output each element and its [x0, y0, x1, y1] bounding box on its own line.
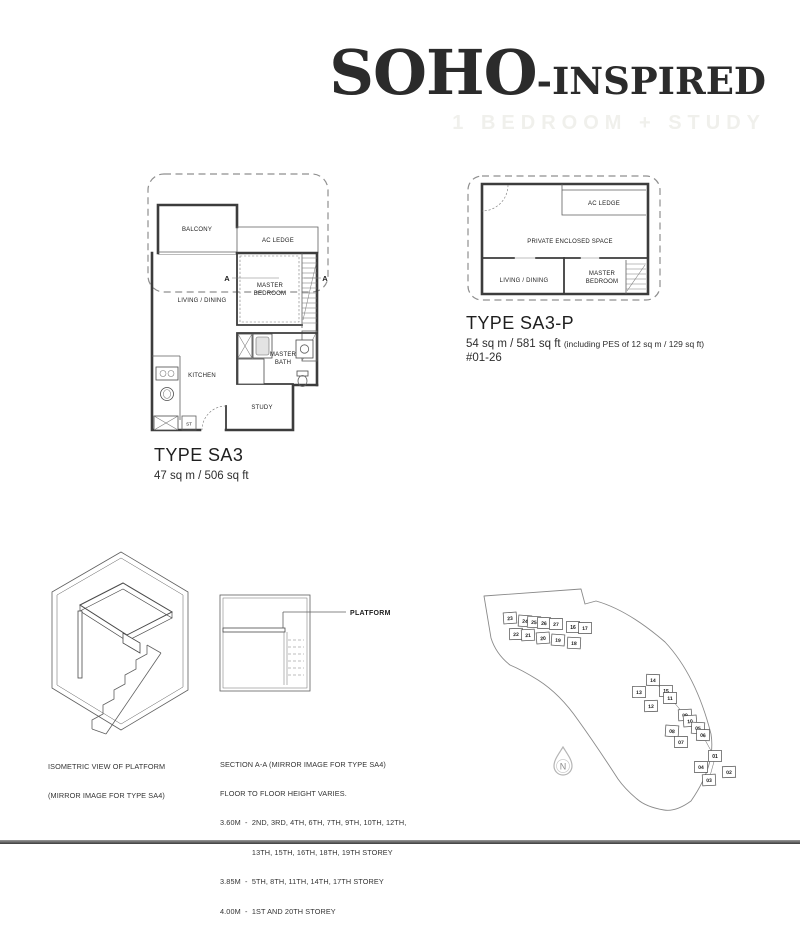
- site-block-number: 04: [698, 765, 704, 771]
- section-caption-line3: 3.60M - 2ND, 3RD, 4TH, 6TH, 7TH, 9TH, 10…: [220, 818, 406, 828]
- type-sa3p-title: TYPE SA3-P: [466, 314, 704, 334]
- pes-door-swing: [482, 185, 508, 211]
- section-drawing: PLATFORM: [218, 590, 398, 705]
- section-stair-dashes: [288, 640, 304, 675]
- bedroom-walls: [237, 253, 302, 325]
- section-caption-line6: 4.00M - 1ST AND 20TH STOREY: [220, 907, 406, 917]
- site-block: 04: [694, 761, 707, 772]
- section-caption: SECTION A-A (MIRROR IMAGE FOR TYPE SA4) …: [220, 740, 406, 926]
- label-living-dining: LIVING / DINING: [178, 298, 227, 304]
- site-block-number: 18: [571, 641, 577, 647]
- site-block: 03: [702, 774, 716, 786]
- site-blocks-group: 2324252627161722212019181413151112091008…: [503, 612, 736, 786]
- site-block-number: 25: [531, 620, 537, 626]
- unit-wall-left: [152, 253, 200, 430]
- section-marker-a-left: A: [224, 274, 230, 283]
- site-block: 19: [551, 634, 565, 646]
- site-block-number: 17: [582, 626, 588, 632]
- label-living-dining-p: LIVING / DINING: [500, 278, 549, 284]
- type-sa3p-area-note: (including PES of 12 sq m / 129 sq ft): [564, 339, 704, 349]
- section-caption-line2: FLOOR TO FLOOR HEIGHT VARIES.: [220, 789, 406, 799]
- site-block: 17: [578, 622, 591, 633]
- section-caption-line1: SECTION A-A (MIRROR IMAGE FOR TYPE SA4): [220, 760, 406, 770]
- section-caption-line4: 13TH, 15TH, 16TH, 18TH, 19TH STOREY: [220, 848, 406, 858]
- label-kitchen: KITCHEN: [188, 373, 216, 379]
- site-block-number: 23: [507, 616, 513, 622]
- floorplan-sa3p: AC LEDGE PRIVATE ENCLOSED SPACE LIVING /…: [458, 170, 663, 310]
- site-block-number: 14: [650, 678, 656, 684]
- site-block-number: 01: [712, 754, 718, 760]
- stair-treads-p: [626, 264, 646, 291]
- site-block-number: 22: [513, 632, 519, 638]
- site-block-number: 11: [667, 696, 673, 702]
- label-study: STUDY: [251, 405, 272, 411]
- site-block-number: 27: [553, 622, 559, 628]
- section-outer-wall: [220, 595, 310, 691]
- label-master: MASTER: [257, 283, 284, 289]
- hob: [156, 367, 178, 380]
- label-ac-ledge-p: AC LEDGE: [588, 201, 620, 207]
- unit-dashed-boundary: [148, 174, 328, 292]
- site-block: 07: [674, 736, 687, 747]
- north-compass: N: [554, 747, 572, 775]
- site-block: 18: [567, 637, 581, 649]
- type-sa3p-area: 54 sq m / 581 sq ft (including PES of 12…: [466, 338, 704, 350]
- iso-caption-line1: ISOMETRIC VIEW OF PLATFORM: [48, 762, 165, 772]
- site-plan: 2324252627161722212019181413151112091008…: [478, 580, 778, 825]
- iso-platform: [78, 583, 172, 678]
- isometric-platform: [28, 538, 193, 743]
- site-block: 20: [536, 632, 550, 644]
- site-block-number: 21: [525, 633, 531, 639]
- label-balcony: BALCONY: [182, 227, 212, 233]
- site-block-number: 26: [541, 621, 547, 627]
- site-block: 08: [665, 725, 679, 737]
- label-pes: PRIVATE ENCLOSED SPACE: [527, 239, 612, 245]
- section-platform: [223, 612, 285, 632]
- type-sa3-area: 47 sq m / 506 sq ft: [154, 470, 249, 482]
- site-block-number: 12: [648, 704, 654, 710]
- stair-treads: [302, 258, 317, 323]
- site-block-number: 20: [540, 636, 546, 642]
- floorplan-sa3: BALCONY AC LEDGE MASTER BEDROOM A A MAST…: [142, 168, 332, 446]
- site-block: 01: [709, 751, 722, 762]
- site-block-number: 13: [636, 690, 642, 696]
- site-block-number: 06: [700, 733, 706, 739]
- section-inner-wall: [223, 598, 307, 688]
- site-block: 13: [632, 686, 645, 697]
- site-block-number: 03: [706, 778, 712, 784]
- site-block: 02: [722, 766, 735, 777]
- vanity: [296, 340, 313, 358]
- north-label: N: [560, 762, 567, 772]
- label-bedroom: BEDROOM: [254, 291, 286, 297]
- bathtub-inner: [256, 337, 269, 355]
- site-block-number: 02: [726, 770, 732, 776]
- iso-room-shell: [52, 552, 188, 730]
- isometric-caption: ISOMETRIC VIEW OF PLATFORM (MIRROR IMAGE…: [48, 742, 165, 811]
- label-master-bath-1: MASTER: [270, 352, 297, 358]
- brand-header: SOHO-INSPIRED 1 BEDROOM + STUDY: [329, 42, 766, 135]
- site-block-number: 07: [678, 740, 684, 746]
- site-block: 27: [549, 618, 562, 629]
- type-sa3-block: TYPE SA3 47 sq m / 506 sq ft: [154, 446, 249, 482]
- type-sa3-title: TYPE SA3: [154, 446, 249, 466]
- entry-door-swing: [202, 406, 226, 430]
- site-block-number: 19: [555, 638, 561, 644]
- iso-caption-line2: (MIRROR IMAGE FOR TYPE SA4): [48, 791, 165, 801]
- site-block-number: 08: [669, 729, 675, 735]
- label-master-p2: BEDROOM: [586, 279, 618, 285]
- shower-stall: [238, 359, 264, 384]
- page-title: SOHO-INSPIRED: [329, 42, 766, 104]
- site-block: 21: [521, 629, 535, 641]
- type-sa3p-unitno: #01-26: [466, 352, 704, 364]
- bedroom-wardrobe-dash: [240, 256, 299, 322]
- iso-support-post: [78, 611, 82, 678]
- site-block-number: 16: [570, 625, 576, 631]
- type-sa3p-block: TYPE SA3-P 54 sq m / 581 sq ft (includin…: [466, 314, 704, 364]
- title-inspired: -INSPIRED: [537, 59, 766, 103]
- site-block: 11: [663, 692, 676, 703]
- site-block: 26: [537, 617, 550, 628]
- section-caption-line5: 3.85M - 5TH, 8TH, 11TH, 14TH, 17TH STORE…: [220, 877, 406, 887]
- page-subtitle: 1 BEDROOM + STUDY: [329, 112, 766, 135]
- site-block: 06: [696, 729, 709, 740]
- title-soho: SOHO: [329, 36, 536, 109]
- site-block: 22: [509, 628, 522, 639]
- site-block: 14: [646, 674, 659, 685]
- site-block: 12: [644, 700, 657, 711]
- site-block: 16: [567, 622, 580, 633]
- site-block: 23: [503, 612, 517, 624]
- type-sa3p-area-main: 54 sq m / 581 sq ft: [466, 338, 561, 350]
- label-store: ST: [186, 422, 192, 427]
- label-master-bath-2: BATH: [275, 360, 291, 366]
- label-ac-ledge: AC LEDGE: [262, 238, 294, 244]
- platform-label: PLATFORM: [350, 610, 391, 617]
- footer-rule: [0, 840, 800, 844]
- ac-ledge-outline-p: [562, 184, 646, 215]
- label-master-p1: MASTER: [589, 271, 616, 277]
- section-marker-a-right: A: [322, 274, 328, 283]
